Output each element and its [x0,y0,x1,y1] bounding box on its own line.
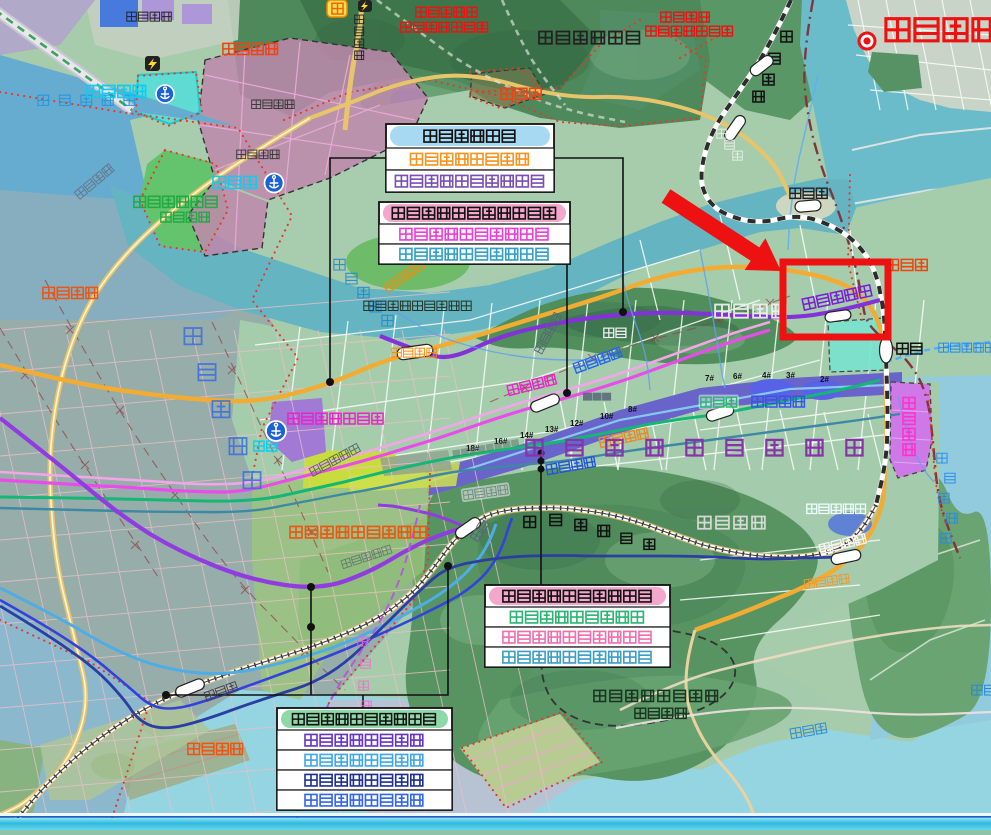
svg-text:4#: 4# [762,371,771,380]
svg-text:6#: 6# [733,372,742,381]
svg-text:14#: 14# [520,431,534,440]
svg-text:7#: 7# [705,374,714,383]
svg-text:12#: 12# [570,419,584,428]
svg-text:13#: 13# [545,425,559,434]
svg-text:8#: 8# [628,405,637,414]
svg-text:10#: 10# [600,412,614,421]
svg-text:2#: 2# [820,375,829,384]
svg-text:3#: 3# [786,371,795,380]
